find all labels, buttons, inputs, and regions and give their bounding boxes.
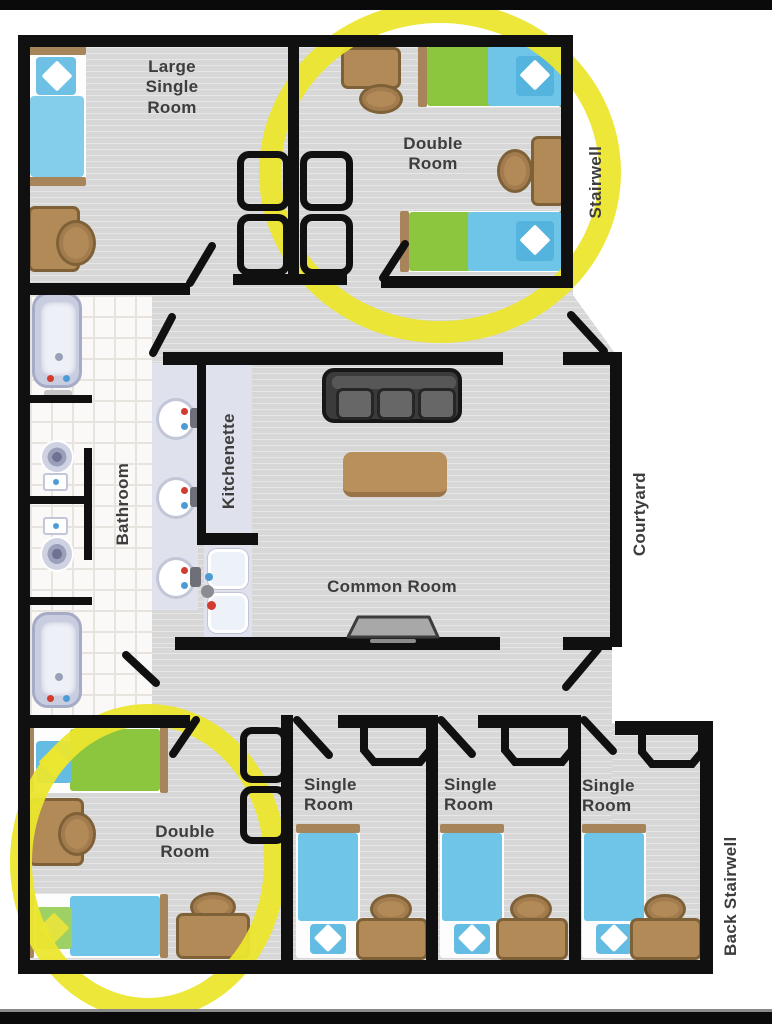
area-label-stairwell: Stairwell [586,112,606,252]
room-label-single-3: Single Room [582,776,662,817]
wall [700,721,713,974]
kitchen-sink-basin [208,593,248,633]
closet [300,214,353,276]
chair [359,84,403,114]
chair [58,812,96,856]
wall [426,715,438,960]
cold-tap-dot [63,695,70,702]
room-label-bathroom: Bathroom [113,434,133,574]
cold-tap-dot [205,573,213,581]
bed-blanket-green [409,212,471,271]
closet [300,151,353,211]
bed-footboard [582,824,646,833]
bed [400,211,568,272]
wall [610,352,622,647]
bed-footboard [160,894,168,958]
kitchen-tap [201,585,214,598]
wall [18,715,190,728]
room-label-single-2: Single Room [444,775,524,816]
couch [322,368,462,423]
bed-footboard [296,824,360,833]
wall [338,715,438,728]
bed-blanket-green [427,46,493,106]
wall [18,35,30,974]
bed [296,824,360,958]
toilet-cistern [43,517,68,535]
wall [197,533,258,545]
bed [26,894,168,958]
wall [18,960,713,974]
closet [237,214,290,276]
wall [569,715,581,960]
stall-wall [25,395,92,403]
bed-headboard [28,46,86,55]
bed-footboard [418,45,427,107]
wall [478,715,581,728]
top-letterbox-bar [0,0,772,10]
bathtub [32,292,82,388]
bed-footboard [28,177,86,186]
bed [26,727,168,793]
bed-blanket [584,833,644,921]
bottom-letterbox-bar [0,1012,772,1024]
bed-blanket-green [70,729,160,791]
bathtub [32,612,82,708]
wall [18,283,190,295]
desk [496,918,568,960]
couch-cushion [336,388,374,420]
wall [163,352,503,365]
room-label-single-1: Single Room [304,775,384,816]
closet [237,151,290,211]
wall [561,35,573,287]
stall-wall [84,448,92,560]
room-label-kitchenette: Kitchenette [219,389,239,533]
bed-footboard [400,211,409,272]
desk [356,918,428,960]
couch-cushion [377,388,415,420]
bed-blanket-blue [70,896,160,956]
area-label-back-stairwell: Back Stairwell [721,811,741,981]
bathtub-basin [41,302,76,376]
stall-wall [25,597,92,605]
wall [197,360,206,541]
wall [615,721,713,735]
bed [28,46,86,186]
desk [630,918,702,960]
drain [55,353,63,361]
sink-tap [190,567,201,587]
wall [175,637,500,650]
chair [56,220,96,266]
coffee-table [343,452,447,497]
area-label-courtyard: Courtyard [630,444,650,584]
closet [240,786,288,844]
bed [440,824,504,958]
hot-tap-dot [47,695,54,702]
bed [418,45,568,107]
cold-tap-dot [63,375,70,382]
bed-blanket [30,96,84,177]
toilet-bowl [40,440,74,474]
desk [176,913,250,959]
hot-tap-dot [47,375,54,382]
wall [381,276,573,288]
room-label-common-room: Common Room [312,577,472,597]
stall-wall [25,496,92,504]
bed-blanket [442,833,502,921]
wall [563,637,612,650]
floor-plan: Large Single Room Double Room Stairwell … [0,0,772,1024]
hot-tap-dot [207,601,216,610]
kitchen-sink-basin [208,549,248,589]
chair [497,149,533,193]
bed-footboard [160,727,168,793]
toilet-cistern [43,473,68,491]
bed-blanket [298,833,358,921]
desk [341,47,401,89]
toilet-bowl [40,536,74,572]
room-label-large-single: Large Single Room [112,57,232,118]
bed-footboard [440,824,504,833]
couch-cushion [418,388,456,420]
room-label-double-top: Double Room [373,134,493,175]
closet [240,727,288,783]
bathtub-basin [41,622,76,696]
drain [55,673,63,681]
room-label-double-bottom: Double Room [125,822,245,863]
